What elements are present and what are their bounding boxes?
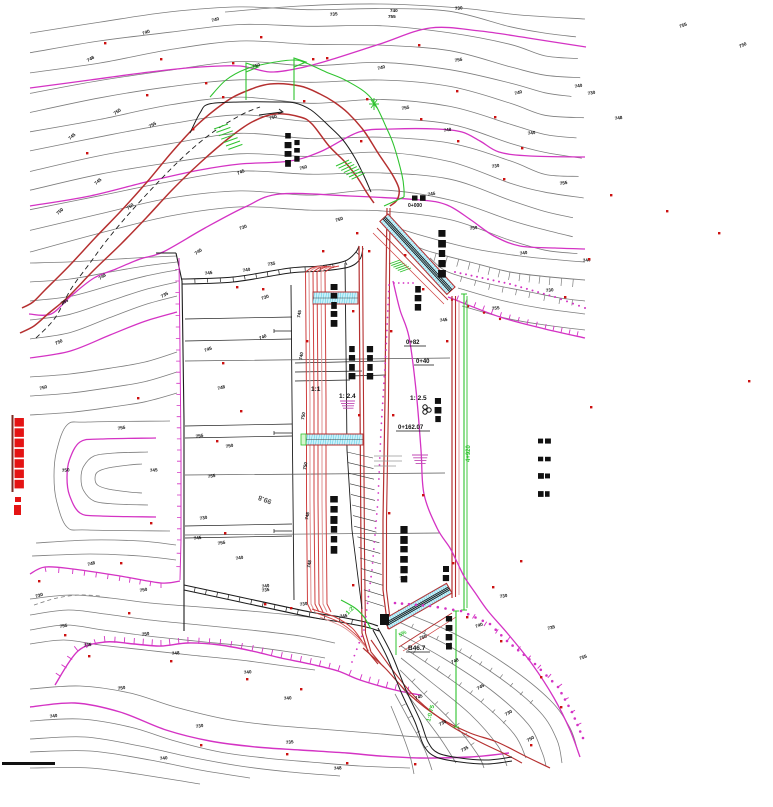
svg-text:755: 755: [492, 305, 501, 311]
svg-text:740: 740: [390, 8, 398, 13]
svg-text:0+82: 0+82: [406, 340, 420, 346]
svg-text:0+40: 0+40: [416, 359, 430, 365]
svg-text:740: 740: [160, 755, 169, 761]
svg-text:740: 740: [244, 669, 253, 675]
svg-text:730: 730: [546, 287, 555, 293]
svg-text:1:1: 1:1: [311, 386, 321, 393]
svg-text:730: 730: [455, 5, 464, 11]
svg-text:748: 748: [172, 650, 181, 656]
svg-text:740: 740: [284, 695, 293, 701]
svg-text:748: 748: [334, 765, 343, 771]
svg-text:0+162.07: 0+162.07: [398, 425, 424, 431]
svg-text:B46.7: B46.7: [408, 645, 426, 652]
svg-text:745: 745: [150, 467, 159, 473]
svg-text:735: 735: [330, 11, 339, 17]
svg-text:1: 2.5: 1: 2.5: [410, 395, 427, 402]
svg-text:735: 735: [286, 739, 295, 745]
svg-text:750: 750: [62, 467, 71, 473]
svg-text:1: 2.4: 1: 2.4: [339, 393, 356, 400]
svg-text:755: 755: [388, 14, 396, 19]
svg-text:0+000: 0+000: [408, 203, 422, 209]
svg-text:4+920: 4+920: [466, 444, 472, 462]
